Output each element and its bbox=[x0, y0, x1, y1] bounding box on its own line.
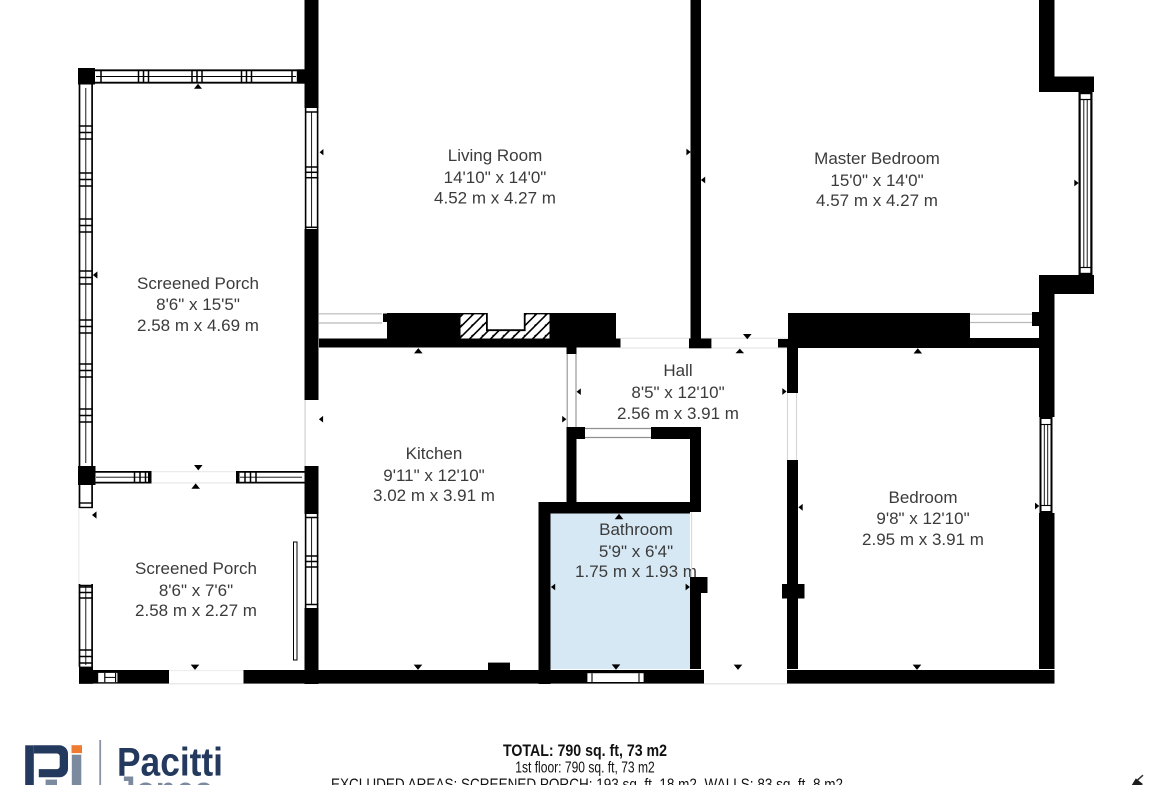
svg-text:5'9" x 6'4": 5'9" x 6'4" bbox=[599, 542, 673, 561]
svg-text:4.57 m x 4.27 m: 4.57 m x 4.27 m bbox=[816, 191, 938, 210]
svg-text:2.58 m x 4.69 m: 2.58 m x 4.69 m bbox=[137, 316, 259, 335]
svg-text:14'10" x 14'0": 14'10" x 14'0" bbox=[444, 168, 547, 187]
svg-text:2.95 m x 3.91 m: 2.95 m x 3.91 m bbox=[862, 530, 984, 549]
svg-text:Bedroom: Bedroom bbox=[889, 488, 958, 507]
svg-text:EXCLUDED AREAS: SCREENED PORCH: EXCLUDED AREAS: SCREENED PORCH: 193 sq. … bbox=[331, 777, 843, 785]
svg-text:9'11" x 12'10": 9'11" x 12'10" bbox=[383, 466, 484, 485]
svg-text:Screened Porch: Screened Porch bbox=[137, 274, 259, 293]
svg-text:Hall: Hall bbox=[663, 361, 692, 380]
svg-text:Living Room: Living Room bbox=[448, 146, 543, 165]
svg-text:3.02 m x 3.91 m: 3.02 m x 3.91 m bbox=[373, 486, 495, 505]
svg-text:8'5" x 12'10": 8'5" x 12'10" bbox=[631, 383, 724, 402]
svg-text:4.52 m x 4.27 m: 4.52 m x 4.27 m bbox=[434, 189, 556, 208]
svg-text:8'6" x 15'5": 8'6" x 15'5" bbox=[156, 295, 240, 314]
svg-text:9'8" x 12'10": 9'8" x 12'10" bbox=[876, 509, 969, 528]
svg-text:Kitchen: Kitchen bbox=[406, 444, 463, 463]
svg-text:15'0" x 14'0": 15'0" x 14'0" bbox=[830, 171, 923, 190]
svg-text:2.58 m x 2.27 m: 2.58 m x 2.27 m bbox=[135, 601, 257, 620]
svg-text:1.75 m x 1.93 m: 1.75 m x 1.93 m bbox=[575, 562, 697, 581]
svg-text:Bathroom: Bathroom bbox=[599, 520, 673, 539]
svg-text:8'6" x 7'6": 8'6" x 7'6" bbox=[159, 581, 233, 600]
svg-text:1st floor: 790 sq. ft, 73 m2: 1st floor: 790 sq. ft, 73 m2 bbox=[515, 760, 655, 777]
svg-text:Master Bedroom: Master Bedroom bbox=[814, 149, 940, 168]
svg-text:Screened Porch: Screened Porch bbox=[135, 559, 257, 578]
svg-text:TOTAL: 790 sq. ft, 73 m2: TOTAL: 790 sq. ft, 73 m2 bbox=[503, 741, 667, 760]
svg-text:2.56 m x 3.91 m: 2.56 m x 3.91 m bbox=[617, 404, 739, 423]
svg-text:Jones: Jones bbox=[117, 769, 213, 785]
